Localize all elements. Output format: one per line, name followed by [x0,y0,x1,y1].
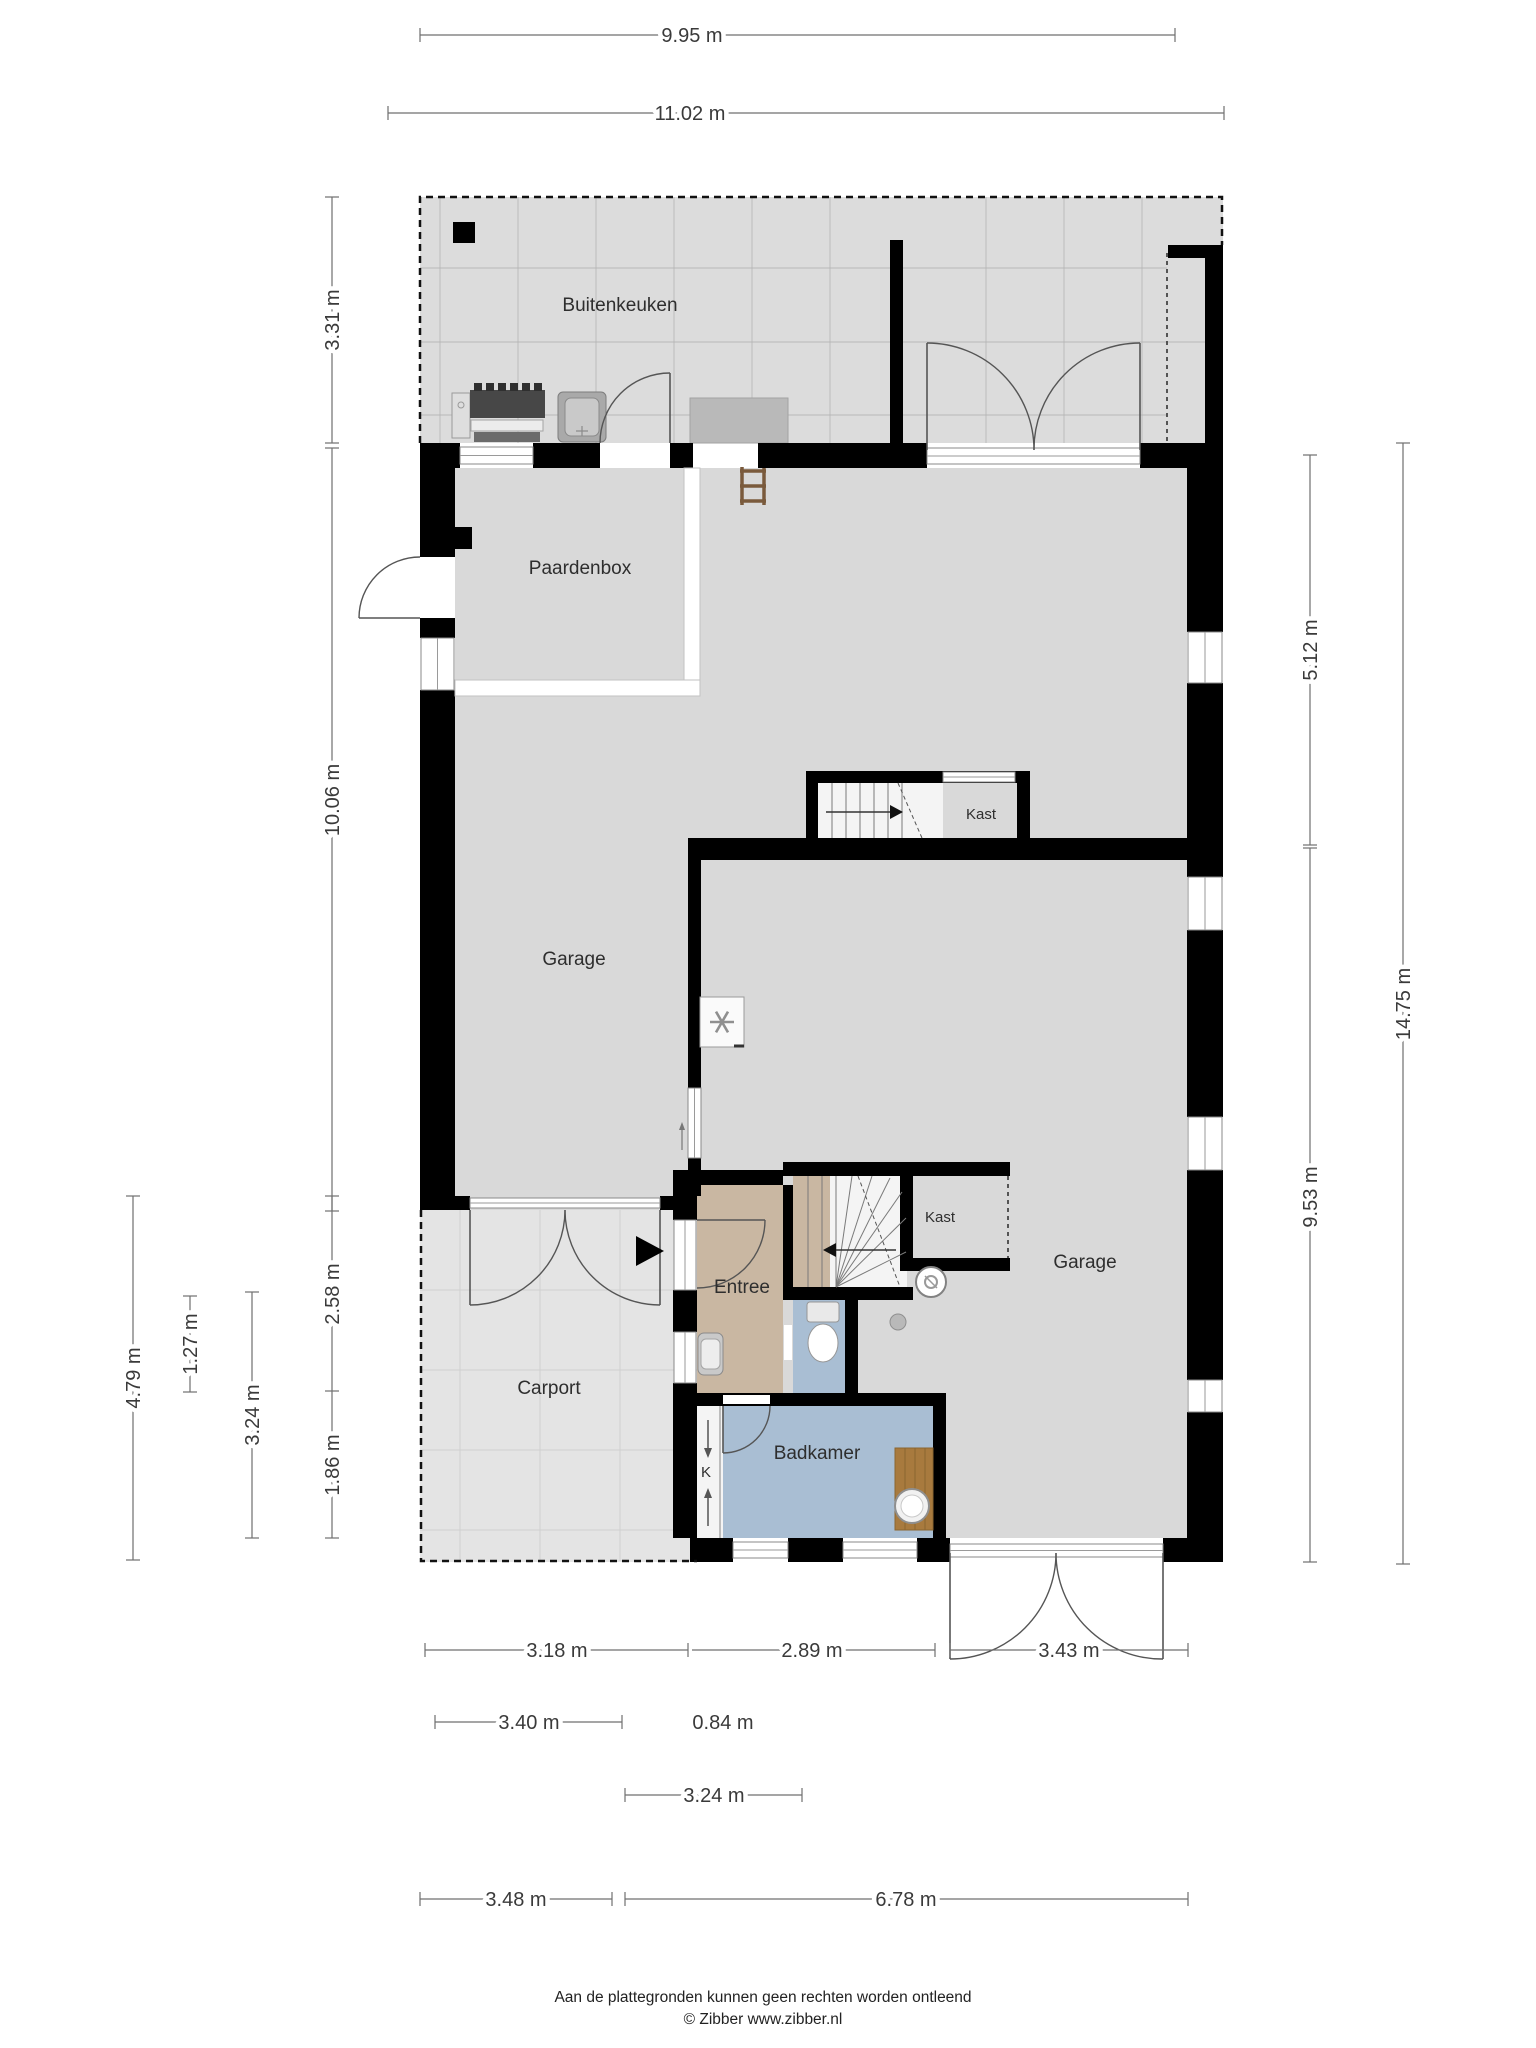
room-label-carport: Carport [517,1378,581,1399]
footer-copyright: © Zibber www.zibber.nl [684,2011,843,2028]
dim-label: 3.43 m [1038,1640,1099,1662]
dim-label: 11.02 m [655,103,726,125]
washing-machine-icon [916,1267,946,1297]
drain-icon [890,1314,906,1330]
dim-label: 4.79 m [123,1347,145,1408]
toilet-door-opening [784,1325,792,1360]
window [733,1542,788,1558]
window [843,1542,917,1558]
dim-label: 9.95 m [661,25,722,47]
interior-door-opening [688,1088,701,1158]
french-door-window [927,448,1140,464]
window [1188,632,1222,683]
footer: Aan de plattegronden kunnen geen rechten… [554,1989,971,2028]
room-label-garage-left: Garage [542,949,605,970]
dim-label: 14.75 m [1393,968,1415,1040]
window [943,772,1015,782]
dim-label: 1.86 m [322,1434,344,1495]
sink-icon [698,1333,723,1375]
room-label-kast-lower: Kast [925,1209,956,1226]
window [1188,1380,1222,1412]
dim-label: 10.06 m [322,764,344,836]
dim-left-5: 3.24 m [242,1292,264,1538]
room-label-badkamer: Badkamer [774,1443,861,1464]
window [421,638,454,690]
window [460,447,533,464]
pillar [453,222,475,243]
dim-label: 0.84 m [692,1712,753,1734]
pass-opening [693,444,758,467]
dim-label: 3.31 m [322,289,344,350]
room-label-paardenbox: Paardenbox [529,558,632,579]
dim-label: 2.58 m [322,1263,344,1324]
stairs-landing-floor [793,1176,830,1287]
toilet-icon [807,1302,839,1362]
sink-icon [558,392,606,442]
dim-bottom-1b: 2.89 m [692,1640,935,1662]
window [1188,1117,1222,1170]
room-label-garage-right: Garage [1053,1252,1116,1273]
badkamer-door-opening [723,1395,770,1404]
door-opening [600,444,670,467]
dim-label: 2.89 m [781,1640,842,1662]
dim-left-7: 4.79 m [123,1196,145,1560]
bath-icon [895,1448,933,1530]
dim-label: 9.53 m [1300,1166,1322,1227]
dim-bottom-2b: 0.84 m [692,1712,753,1734]
dim-bottom-4a: 3.48 m [420,1889,612,1911]
room-label-buitenkeuken: Buitenkeuken [562,295,677,316]
buitenkeuken-partition-wall [890,240,903,443]
dim-right-1: 5.12 m [1300,455,1322,845]
dim-label: 3.48 m [485,1889,546,1911]
dim-bottom-3a: 3.24 m [625,1785,802,1807]
floorplan-canvas: Buitenkeuken Paardenbox Garage Garage Ka… [0,0,1536,2048]
garage-door-opening [470,1198,660,1208]
footer-disclaimer: Aan de plattegronden kunnen geen rechten… [554,1989,971,2006]
room-label-closet-k: K [701,1464,711,1481]
dim-right-3: 14.75 m [1393,443,1415,1564]
side-door-opening [420,557,455,618]
ventilation-icon [700,997,744,1047]
dim-bottom-1a: 3.18 m [425,1640,688,1662]
room-label-entree: Entree [714,1277,770,1298]
dim-label: 3.40 m [498,1712,559,1734]
dim-label: 5.12 m [1300,619,1322,680]
dim-label: 3.24 m [242,1384,264,1445]
dim-top-2: 11.02 m [388,103,1224,125]
dim-left-2: 10.06 m [322,448,344,1211]
dim-left-4: 1.86 m [322,1391,344,1538]
window [1188,877,1222,930]
dim-label: 1.27 m [180,1313,202,1374]
front-door-opening [674,1220,696,1290]
dim-left-1: 3.31 m [322,197,344,443]
dim-bottom-4b: 6.78 m [625,1889,1188,1911]
dim-bottom-2a: 3.40 m [435,1712,622,1734]
dim-left-6: 1.27 m [180,1296,202,1392]
dim-label: 3.24 m [683,1785,744,1807]
dim-label: 6.78 m [875,1889,936,1911]
upper-stairs-floor [818,783,943,838]
dim-top-1: 9.95 m [420,25,1175,47]
dim-right-2: 9.53 m [1300,848,1322,1562]
dim-label: 3.18 m [526,1640,587,1662]
room-label-kast-upper: Kast [966,806,997,823]
dim-left-3: 2.58 m [322,1196,344,1391]
window [674,1332,696,1383]
outdoor-counter [690,398,788,443]
